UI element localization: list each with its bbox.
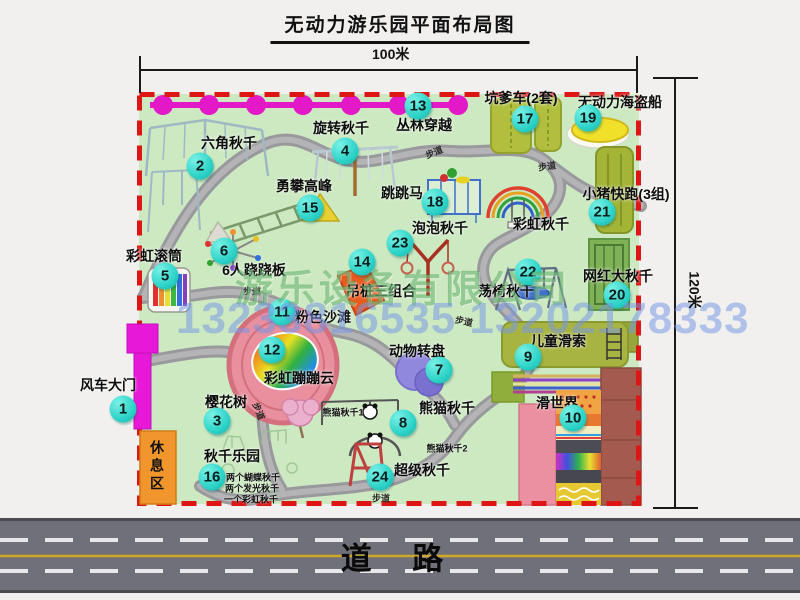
attraction-sublabel-8-1: 熊猫秋千2	[426, 442, 467, 455]
attraction-label-2: 六角秋千	[201, 133, 257, 153]
attraction-sublabel-8-0: 熊猫秋千1	[322, 406, 363, 419]
attraction-label-5: 彩虹滚筒	[126, 246, 182, 266]
attraction-marker-17: 17	[512, 106, 539, 133]
width-dimension-label: 100米	[372, 44, 409, 64]
walkway-label-5: 步道	[372, 492, 390, 505]
watermark-phone: 13233816535 13202178333	[176, 294, 750, 344]
height-dimension-label: 120米	[685, 271, 705, 308]
attraction-label-4: 旋转秋千	[313, 118, 369, 138]
attraction-label-8: 熊猫秋千	[419, 398, 475, 418]
attraction-marker-24: 24	[367, 464, 394, 491]
attraction-marker-15: 15	[297, 195, 324, 222]
page-title: 无动力游乐园平面布局图	[270, 10, 529, 44]
attraction-label-彩虹秋千: 彩虹秋千	[513, 214, 569, 234]
attraction-marker-4: 4	[332, 138, 359, 165]
attraction-marker-21: 21	[589, 199, 616, 226]
attraction-label-1: 风车大门	[80, 375, 136, 395]
attraction-label-12: 彩虹蹦蹦云	[264, 368, 334, 388]
attraction-marker-2: 2	[187, 153, 214, 180]
attraction-marker-5: 5	[152, 263, 179, 290]
attraction-marker-19: 19	[575, 105, 602, 132]
attraction-label-15: 勇攀高峰	[276, 176, 332, 196]
attraction-marker-18: 18	[422, 189, 449, 216]
park-layout-poster: 无动力游乐园平面布局图 100米 120米	[0, 0, 800, 600]
attraction-marker-23: 23	[387, 230, 414, 257]
rest-area-label: 休息区	[147, 440, 167, 494]
attraction-label-23: 泡泡秋千	[412, 218, 468, 238]
attraction-marker-6: 6	[211, 238, 238, 265]
attraction-label-24: 超级秋千	[394, 460, 450, 480]
attraction-sublabel-16-2: 一个彩虹秋千	[224, 493, 278, 506]
attraction-marker-1: 1	[110, 396, 137, 423]
attraction-marker-9: 9	[515, 344, 542, 371]
attraction-label-18: 跳跳马	[381, 183, 423, 203]
attraction-marker-7: 7	[426, 357, 453, 384]
attraction-marker-16: 16	[199, 464, 226, 491]
road-label: 道 路	[341, 534, 460, 579]
walkway-label-1: 步道	[537, 158, 557, 173]
attraction-marker-3: 3	[204, 408, 231, 435]
attraction-marker-8: 8	[390, 410, 417, 437]
attraction-marker-13: 13	[405, 93, 432, 120]
attraction-marker-10: 10	[560, 405, 587, 432]
